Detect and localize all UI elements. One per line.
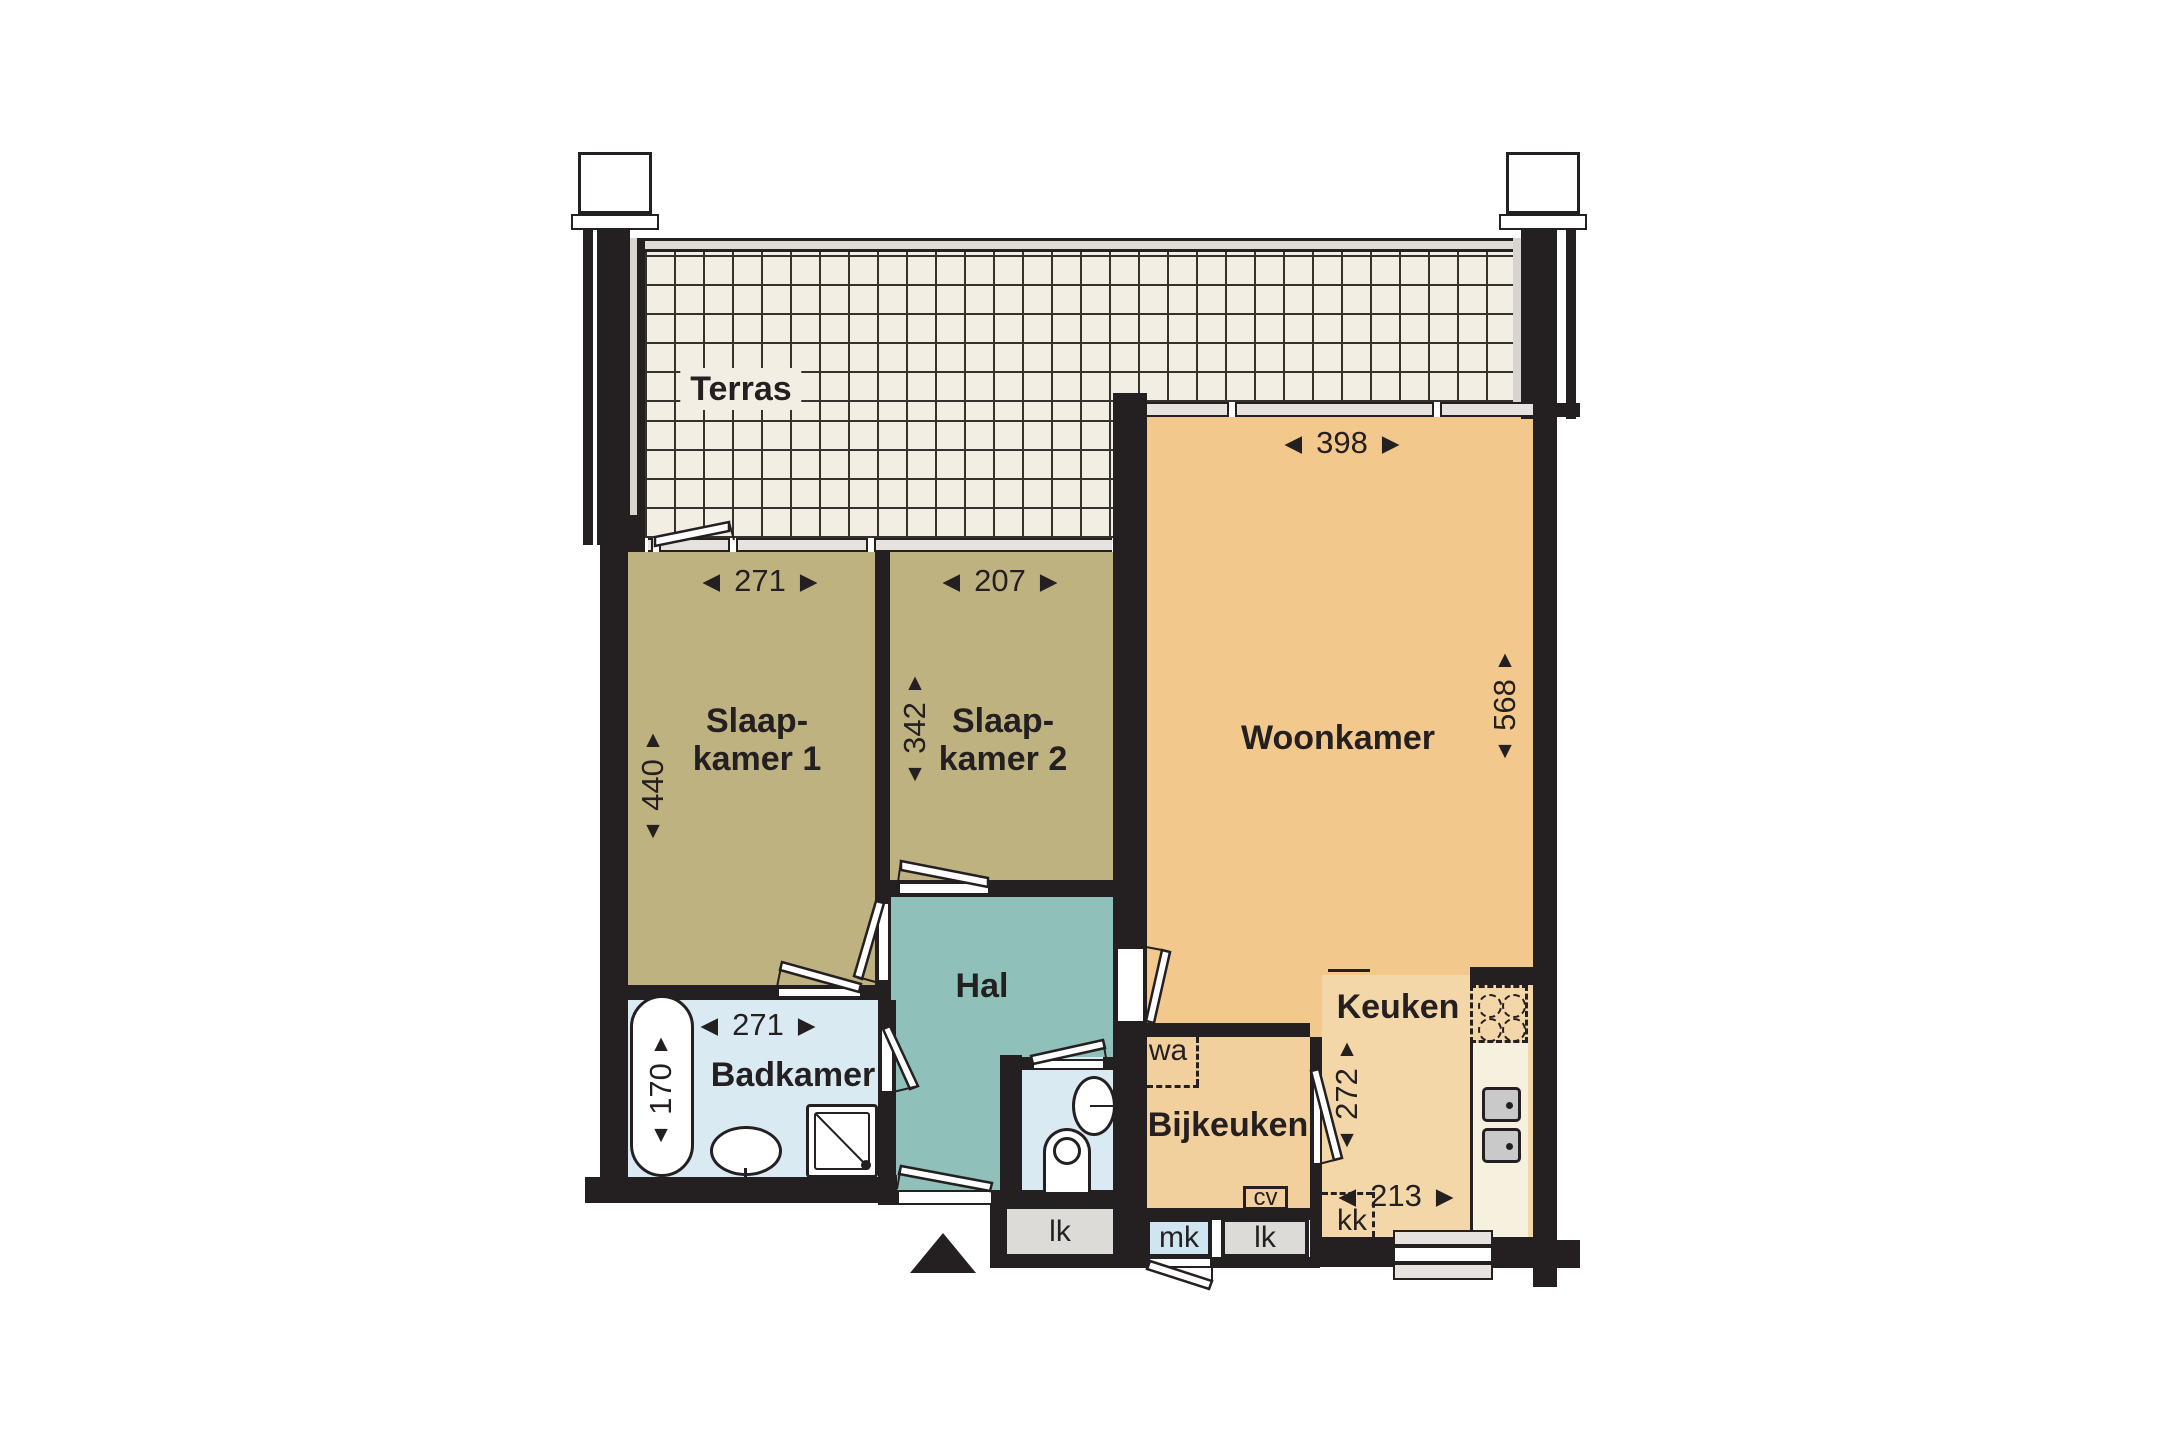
keuken-window-inner <box>1393 1263 1493 1280</box>
threshold-woonkamer-door <box>1116 947 1145 1023</box>
column-top-right-base <box>1499 214 1587 230</box>
arrow-left-icon: ◀ <box>1284 432 1302 455</box>
appliance-handle-icon <box>1506 1102 1513 1109</box>
wall-shaft-left-chunk <box>990 1205 1003 1268</box>
slaapkamer1-depth-dimension: ▲ 440 ▼ <box>627 728 679 842</box>
woonkamer-width-dimension: ◀ 398 ▶ <box>1284 425 1399 461</box>
keuken-depth-dimension: ▲ 272 ▼ <box>1321 1037 1373 1151</box>
wall-terrace-right-main <box>1521 229 1557 419</box>
terras-label: Terras <box>680 368 801 410</box>
woonkamer-width-value: 398 <box>1316 425 1368 461</box>
wall-frontdoor-right-chunk <box>993 1190 1023 1205</box>
shaft-right-label: lk <box>1254 1221 1276 1255</box>
keuken-width-dimension: ◀ 213 ▶ <box>1338 1178 1453 1214</box>
arrow-up-icon: ▲ <box>642 728 665 751</box>
slaapkamer1-depth-value: 440 <box>635 759 671 811</box>
wall-sl1-sl2 <box>875 552 890 882</box>
badkamer-label: Badkamer <box>711 1056 875 1094</box>
threshold-toilet-door <box>1032 1059 1105 1070</box>
wall-terrace-left-main <box>597 229 630 545</box>
hal-label-text: Hal <box>956 967 1009 1005</box>
arrow-up-icon: ▲ <box>650 1032 673 1055</box>
badkamer-width-dimension: ◀ 271 ▶ <box>700 1007 815 1043</box>
column-top-left-base <box>571 214 659 230</box>
entrance-arrow-icon <box>910 1233 976 1273</box>
arrow-right-icon: ▶ <box>1040 570 1058 593</box>
wall-keuken-top-right <box>1470 967 1533 985</box>
cooktop-burner-4 <box>1502 1018 1526 1042</box>
threshold-badkamer-hal-door <box>880 1027 894 1093</box>
slaapkamer2-depth-dimension: ▲ 342 ▼ <box>889 671 941 785</box>
wall-terrace-right-reveal <box>1513 238 1521 406</box>
slaapkamer-window-band <box>648 538 1112 552</box>
arrow-up-icon: ▲ <box>1494 648 1517 671</box>
boiler-label: cv <box>1254 1184 1278 1212</box>
keuken-depth-value: 272 <box>1329 1068 1365 1120</box>
wall-terrace-left-outer <box>583 229 593 545</box>
floorplan-canvas: lk mk lk cv <box>0 0 2160 1440</box>
meter-cupboard-box: mk <box>1146 1218 1212 1258</box>
slaapkamer-window-mullion-3 <box>866 538 876 552</box>
arrow-down-icon: ▼ <box>1494 739 1517 762</box>
wall-terrace-left-inner <box>637 238 645 542</box>
meter-cupboard-label: mk <box>1159 1221 1199 1255</box>
woonkamer-label: Woonkamer <box>1241 719 1435 757</box>
keuken-open-boundary-tick <box>1328 969 1370 972</box>
threshold-slaapkamer2-door <box>898 882 990 895</box>
terras-railing <box>645 238 1513 252</box>
wall-terrace-left-reveal <box>630 238 637 540</box>
washer-space-dashed-right <box>1196 1037 1199 1085</box>
threshold-mk-door <box>1148 1257 1212 1268</box>
toilet-bowl-inner <box>1053 1137 1081 1165</box>
slaapkamer1-label: Slaap- kamer 1 <box>693 702 822 778</box>
terras-floor-left <box>645 402 1113 538</box>
arrow-right-icon: ▶ <box>1436 1185 1454 1208</box>
appliance-handle-icon <box>1506 1143 1513 1150</box>
keuken-window-outer <box>1393 1230 1493 1246</box>
slaapkamer1-width-value: 271 <box>734 563 786 599</box>
slaapkamer2-width-dimension: ◀ 207 ▶ <box>942 563 1057 599</box>
wall-frontdoor-left-chunk <box>878 1175 897 1205</box>
keuken-width-value: 213 <box>1370 1178 1422 1214</box>
cooktop-burner-3 <box>1478 1018 1502 1042</box>
slaapkamer2-label: Slaap- kamer 2 <box>939 702 1068 778</box>
arrow-left-icon: ◀ <box>702 570 720 593</box>
woonkamer-window-band <box>1147 402 1533 417</box>
keuken-label-text: Keuken <box>1337 988 1460 1026</box>
shaft-left-label: lk <box>1049 1215 1071 1249</box>
slaapkamer1-width-dimension: ◀ 271 ▶ <box>702 563 817 599</box>
woonkamer-depth-value: 568 <box>1487 679 1523 731</box>
threshold-front-door <box>897 1190 993 1205</box>
boiler-box: cv <box>1243 1186 1288 1210</box>
wall-right-outer <box>1533 417 1557 1287</box>
arrow-right-icon: ▶ <box>800 570 818 593</box>
arrow-down-icon: ▼ <box>904 762 927 785</box>
bathroom-sink-tap <box>744 1168 747 1186</box>
hal-label: Hal <box>956 967 1009 1005</box>
cooktop <box>1470 985 1528 1043</box>
arrow-right-icon: ▶ <box>798 1014 816 1037</box>
kitchen-appliance-bottom <box>1482 1128 1521 1163</box>
keuken-window-middle <box>1393 1246 1493 1263</box>
cooktop-burner-1 <box>1478 994 1502 1018</box>
slaapkamer2-width-value: 207 <box>974 563 1026 599</box>
arrow-up-icon: ▲ <box>1336 1037 1359 1060</box>
slaapkamer-window-mullion-2 <box>728 538 738 552</box>
wall-toilet-top-stub-left <box>1022 1057 1032 1070</box>
threshold-badkamer-slaapkamer1-door <box>777 987 862 998</box>
arrow-left-icon: ◀ <box>942 570 960 593</box>
badkamer-label-text: Badkamer <box>711 1056 875 1094</box>
kitchen-appliance-top <box>1482 1087 1521 1122</box>
bathtub-length-dimension: ▲ 170 ▼ <box>635 1032 687 1146</box>
slaapkamer2-depth-value: 342 <box>897 702 933 754</box>
washer-space-dashed-bottom <box>1147 1085 1199 1088</box>
arrow-down-icon: ▼ <box>642 819 665 842</box>
keuken-label: Keuken <box>1337 988 1460 1026</box>
woonkamer-depth-dimension: ▲ 568 ▼ <box>1479 648 1531 762</box>
bathtub-length-value: 170 <box>643 1063 679 1115</box>
slaapkamer-window-mullion-1 <box>651 538 661 552</box>
slaapkamer1-label-line2: kamer 1 <box>693 740 822 778</box>
wall-left-outer <box>600 538 628 1203</box>
slaapkamer1-label-line1: Slaap- <box>706 702 808 740</box>
woonkamer-window-mullion-1 <box>1227 402 1237 417</box>
threshold-slaapkamer1-door <box>877 902 890 982</box>
arrow-down-icon: ▼ <box>650 1123 673 1146</box>
arrow-right-icon: ▶ <box>1382 432 1400 455</box>
shaft-box-right: lk <box>1221 1218 1309 1258</box>
toilet-basin <box>1072 1076 1116 1136</box>
washer-label: wa <box>1149 1034 1187 1068</box>
woonkamer-label-text: Woonkamer <box>1241 719 1435 757</box>
shower-tray <box>806 1104 878 1178</box>
washer-label-text: wa <box>1149 1034 1187 1067</box>
wall-terrace-right-outer <box>1566 229 1576 419</box>
slaapkamer2-label-line1: Slaap- <box>952 702 1054 740</box>
column-top-left <box>578 152 652 214</box>
arrow-left-icon: ◀ <box>700 1014 718 1037</box>
bijkeuken-label: Bijkeuken <box>1148 1106 1309 1144</box>
wall-hal-woonkamer <box>1113 393 1147 1257</box>
shower-tray-inner <box>814 1112 870 1170</box>
arrow-left-icon: ◀ <box>1338 1185 1356 1208</box>
badkamer-width-value: 271 <box>732 1007 784 1043</box>
shaft-box-left: lk <box>1003 1205 1117 1258</box>
slaapkamer2-label-line2: kamer 2 <box>939 740 1068 778</box>
toilet-bowl <box>1043 1128 1091 1192</box>
column-top-right <box>1506 152 1580 214</box>
cooktop-burner-2 <box>1502 994 1526 1018</box>
bijkeuken-label-text: Bijkeuken <box>1148 1106 1309 1144</box>
terras-label-text: Terras <box>690 370 791 408</box>
arrow-down-icon: ▼ <box>1336 1128 1359 1151</box>
woonkamer-window-mullion-2 <box>1432 402 1442 417</box>
wall-toilet-left <box>1000 1055 1022 1205</box>
arrow-up-icon: ▲ <box>904 671 927 694</box>
wall-bottom-left <box>585 1177 897 1203</box>
